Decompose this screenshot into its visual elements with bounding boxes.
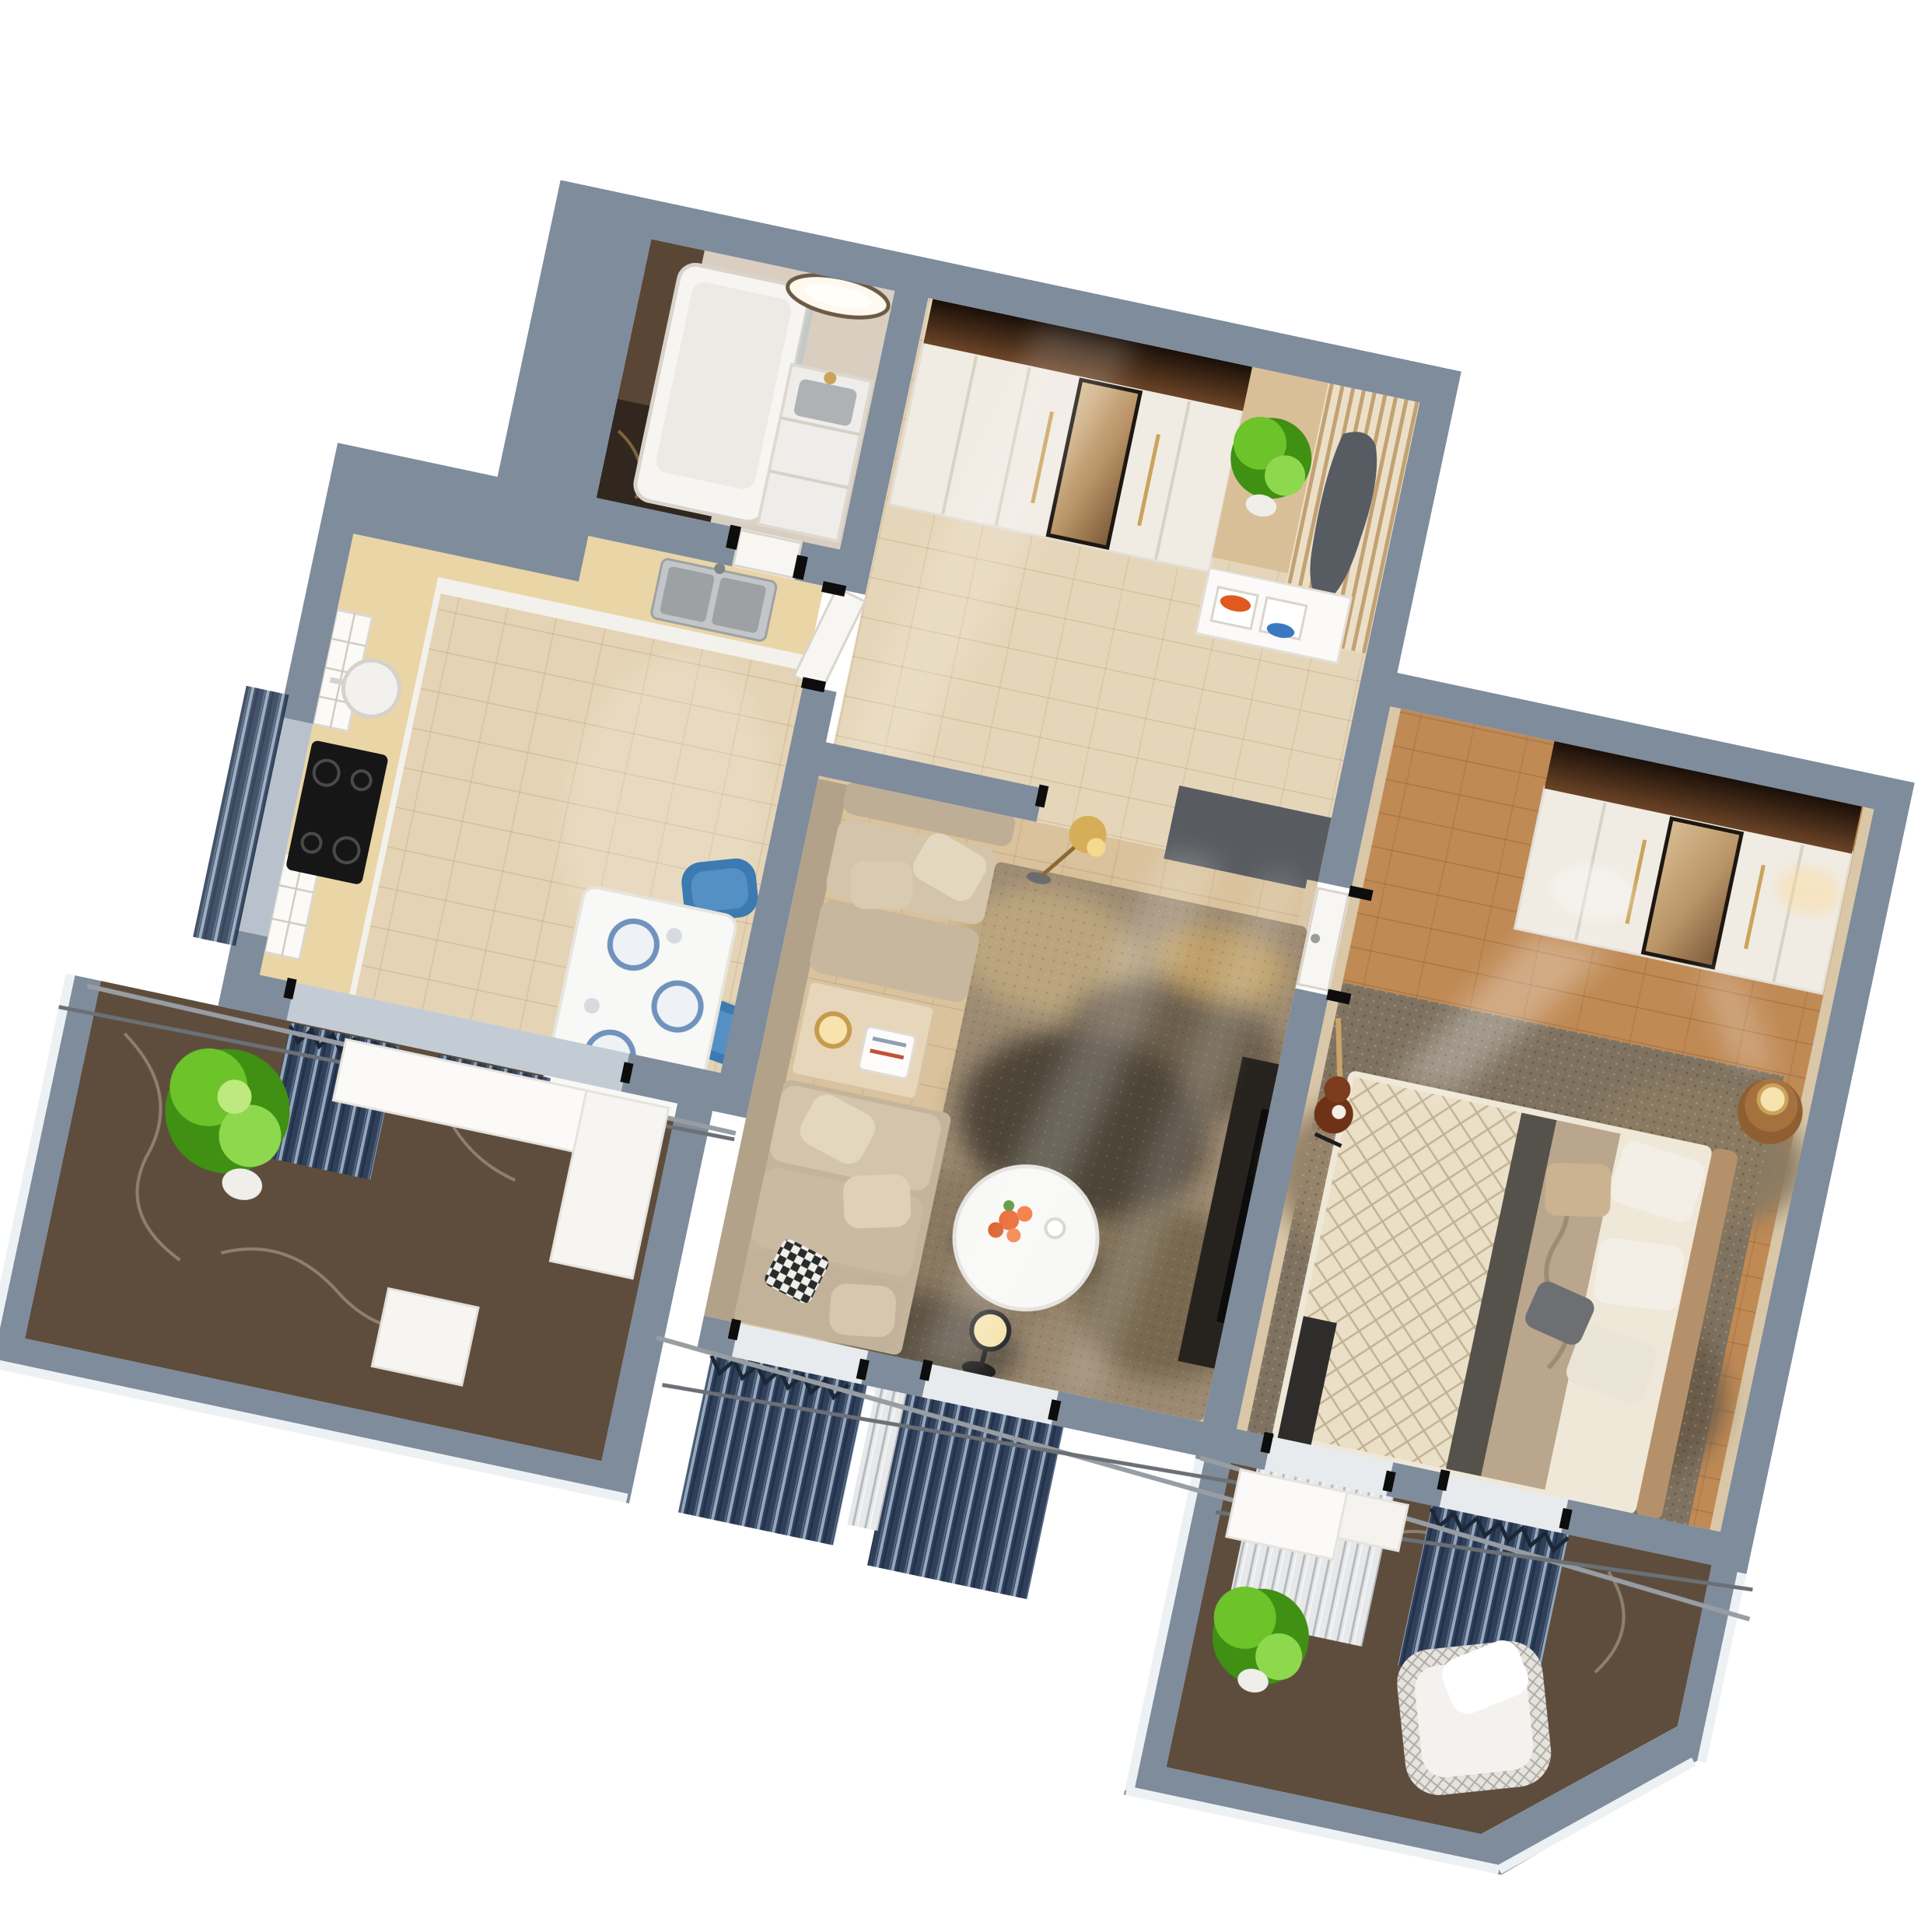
bed-pillow-white	[1593, 1237, 1685, 1312]
balcony-stool	[372, 1289, 478, 1385]
wicker-armchair	[1393, 1633, 1554, 1798]
floorplan-stage	[0, 0, 1932, 1932]
bed-pillow-tan	[1545, 1163, 1612, 1218]
floorplan-canvas	[0, 0, 1932, 1932]
sofa-pillow	[850, 861, 912, 909]
sofa-pillow	[842, 1174, 911, 1229]
floorplan	[0, 114, 1932, 1914]
sofa-pillow	[828, 1283, 897, 1339]
